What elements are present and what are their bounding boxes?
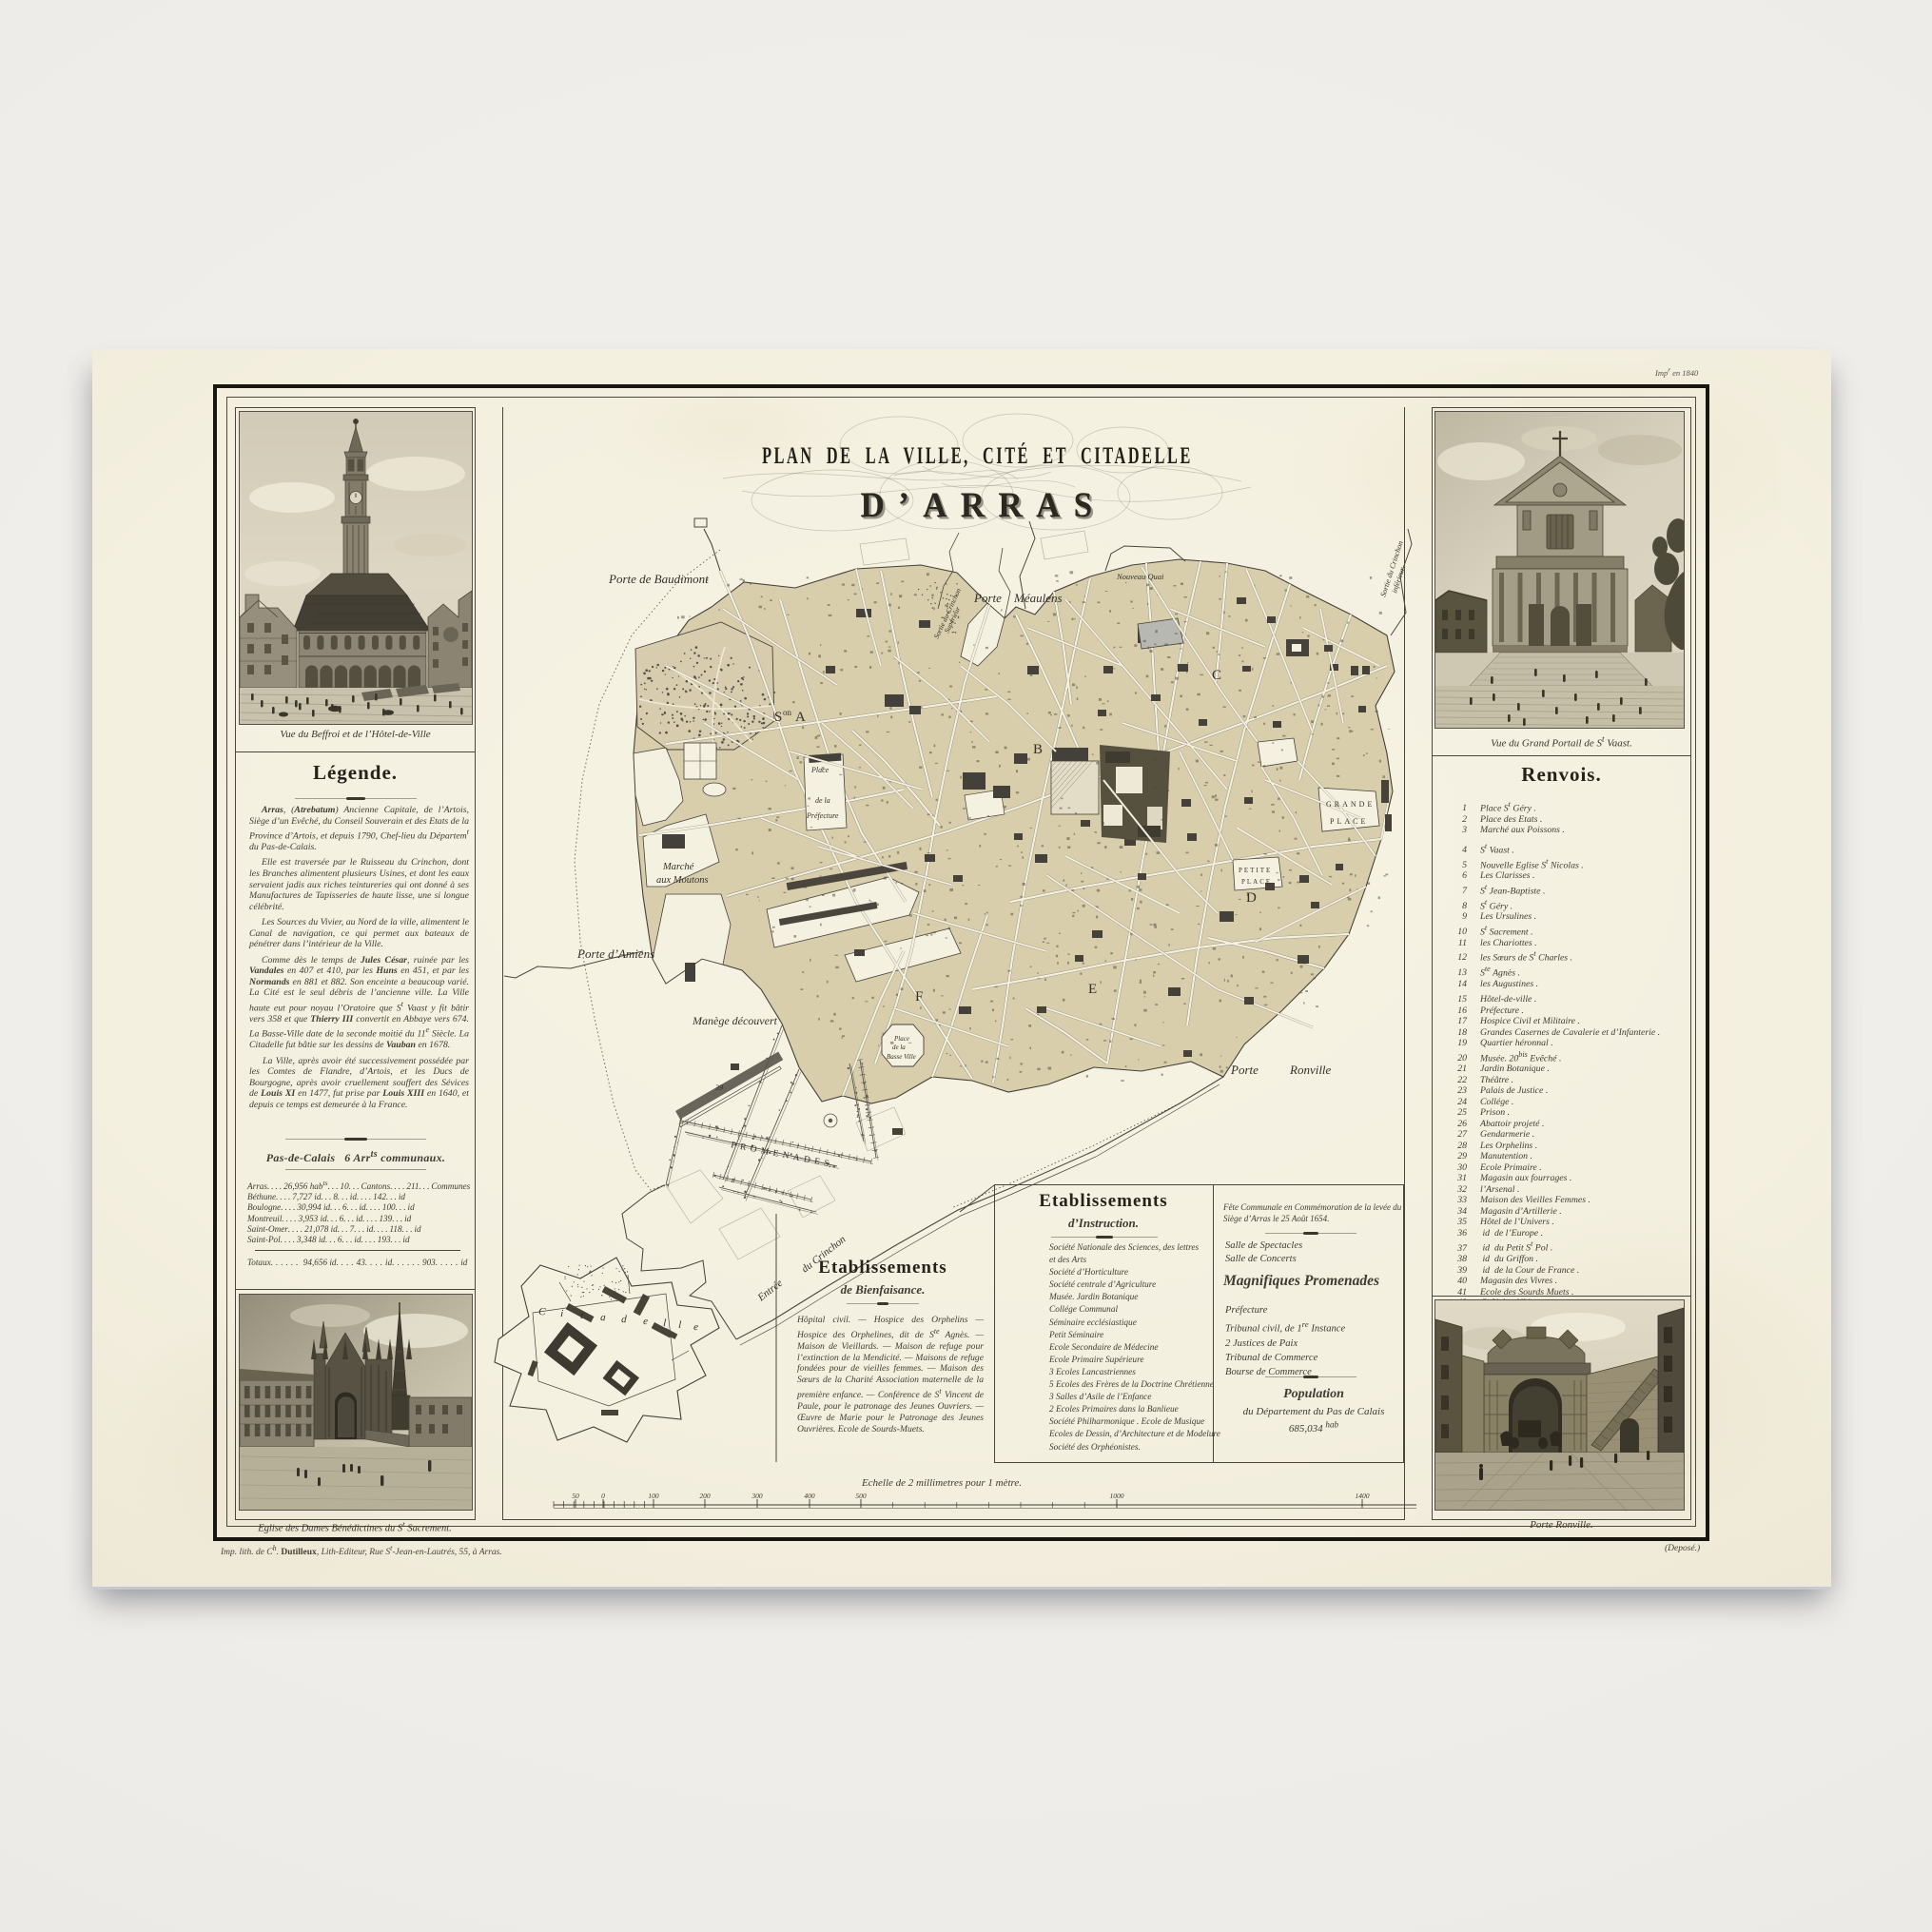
svg-text:C: C bbox=[538, 1306, 547, 1317]
svg-text:0: 0 bbox=[601, 1492, 605, 1500]
svg-text:Place: Place bbox=[810, 766, 829, 774]
svg-text:l: l bbox=[663, 1317, 667, 1329]
svg-text:39: 39 bbox=[714, 1083, 723, 1092]
svg-text:Ronville: Ronville bbox=[1289, 1063, 1332, 1077]
svg-text:Préfecture: Préfecture bbox=[806, 811, 839, 820]
svg-text:PLACE: PLACE bbox=[1241, 878, 1272, 886]
svg-text:400: 400 bbox=[804, 1492, 815, 1500]
svg-text:B: B bbox=[1033, 742, 1043, 757]
svg-text:F: F bbox=[915, 989, 923, 1005]
svg-text:A: A bbox=[795, 710, 806, 725]
svg-text:200: 200 bbox=[699, 1492, 711, 1500]
svg-text:e: e bbox=[693, 1321, 699, 1333]
svg-text:S: S bbox=[774, 710, 782, 725]
svg-text:Nouveau Quai: Nouveau Quai bbox=[1116, 572, 1164, 581]
svg-text:Manège découvert: Manège découvert bbox=[692, 1014, 778, 1027]
svg-text:on: on bbox=[783, 708, 792, 717]
svg-text:E: E bbox=[1088, 982, 1097, 997]
svg-text:300: 300 bbox=[751, 1492, 763, 1500]
svg-text:aux Moutons: aux Moutons bbox=[656, 875, 709, 886]
svg-text:de la: de la bbox=[892, 1044, 906, 1051]
svg-text:GRANDE: GRANDE bbox=[1326, 800, 1375, 809]
svg-text:1400: 1400 bbox=[1356, 1492, 1370, 1500]
svg-text:Basse Ville: Basse Ville bbox=[887, 1053, 916, 1061]
svg-text:1000: 1000 bbox=[1110, 1492, 1124, 1500]
svg-text:PROMENADES: PROMENADES bbox=[730, 1141, 833, 1170]
svg-text:PETITE: PETITE bbox=[1239, 867, 1272, 874]
svg-text:e: e bbox=[643, 1316, 649, 1327]
svg-text:Porte d’Amiens: Porte d’Amiens bbox=[576, 946, 654, 961]
svg-text:Porte: Porte bbox=[1230, 1063, 1259, 1077]
svg-text:de la: de la bbox=[815, 796, 830, 805]
svg-text:Place: Place bbox=[893, 1035, 909, 1043]
svg-text:100: 100 bbox=[648, 1492, 659, 1500]
svg-text:C: C bbox=[1212, 668, 1221, 683]
svg-text:Méaulens: Méaulens bbox=[1013, 591, 1063, 605]
svg-text:PLACE: PLACE bbox=[1330, 817, 1368, 826]
svg-text:D: D bbox=[1246, 890, 1257, 906]
svg-text:Porte de Baudimont: Porte de Baudimont bbox=[608, 572, 709, 586]
svg-text:Marché: Marché bbox=[662, 862, 695, 872]
svg-text:500: 500 bbox=[855, 1492, 867, 1500]
svg-text:Porte: Porte bbox=[973, 591, 1002, 605]
svg-text:l: l bbox=[678, 1319, 682, 1331]
svg-text:50: 50 bbox=[572, 1492, 579, 1500]
svg-text:i: i bbox=[560, 1308, 564, 1319]
